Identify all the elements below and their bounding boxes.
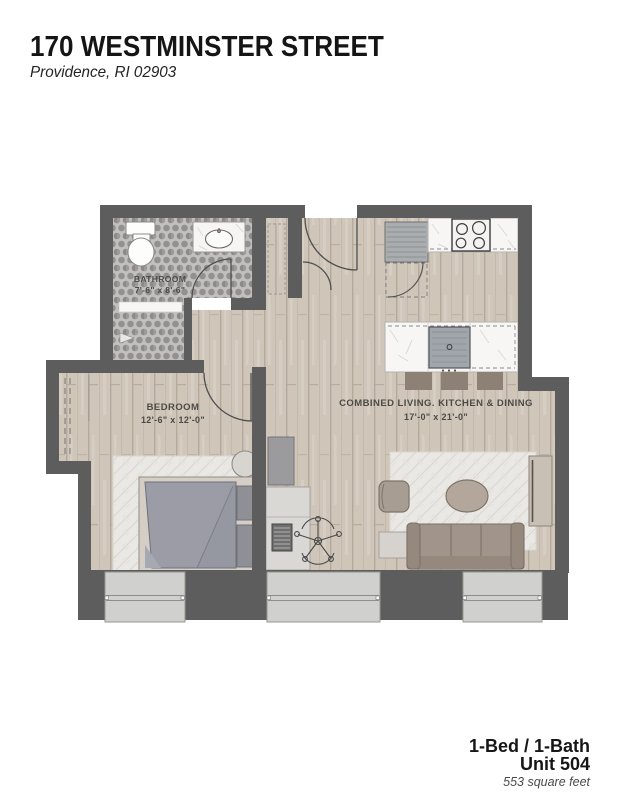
pillow <box>237 525 253 567</box>
unit-number: Unit 504 <box>469 755 590 773</box>
window-bay <box>105 572 185 622</box>
footer: 1-Bed / 1-Bath Unit 504 553 square feet <box>469 737 590 788</box>
floorplan-drawing: BATHROOM 7'-6" x 8'-6" BEDROOM 12'-6" x … <box>0 0 628 811</box>
wardrobe <box>268 437 294 485</box>
bed <box>139 477 258 572</box>
windows <box>105 572 542 622</box>
bar-stools <box>405 372 503 390</box>
unit-type: 1-Bed / 1-Bath <box>469 737 590 755</box>
laptop <box>272 524 292 551</box>
living-dims: 17'-0" x 21'-0" <box>404 412 468 422</box>
toilet <box>126 222 155 266</box>
bathroom-label: BATHROOM <box>134 274 186 284</box>
pillow <box>237 486 253 520</box>
living-label: COMBINED LIVING. KITCHEN & DINING <box>339 398 533 409</box>
bedroom-label: BEDROOM <box>147 402 200 413</box>
vanity-sink <box>193 222 245 252</box>
bathroom-threshold <box>119 302 182 312</box>
island-sink <box>429 327 470 372</box>
floorplan-page: 170 WESTMINSTER STREET Providence, RI 02… <box>0 0 628 811</box>
unit-area: 553 square feet <box>469 776 590 789</box>
sofa <box>407 523 524 569</box>
bedroom-dims: 12'-6" x 12'-0" <box>141 415 205 425</box>
window-bay <box>463 572 542 622</box>
coffee-table <box>446 480 488 512</box>
side-table <box>379 532 407 558</box>
bathroom-dims: 7'-6" x 8'-6" <box>135 285 186 295</box>
tv-console <box>529 456 552 526</box>
window-bay <box>267 572 380 622</box>
cooktop <box>452 219 490 251</box>
